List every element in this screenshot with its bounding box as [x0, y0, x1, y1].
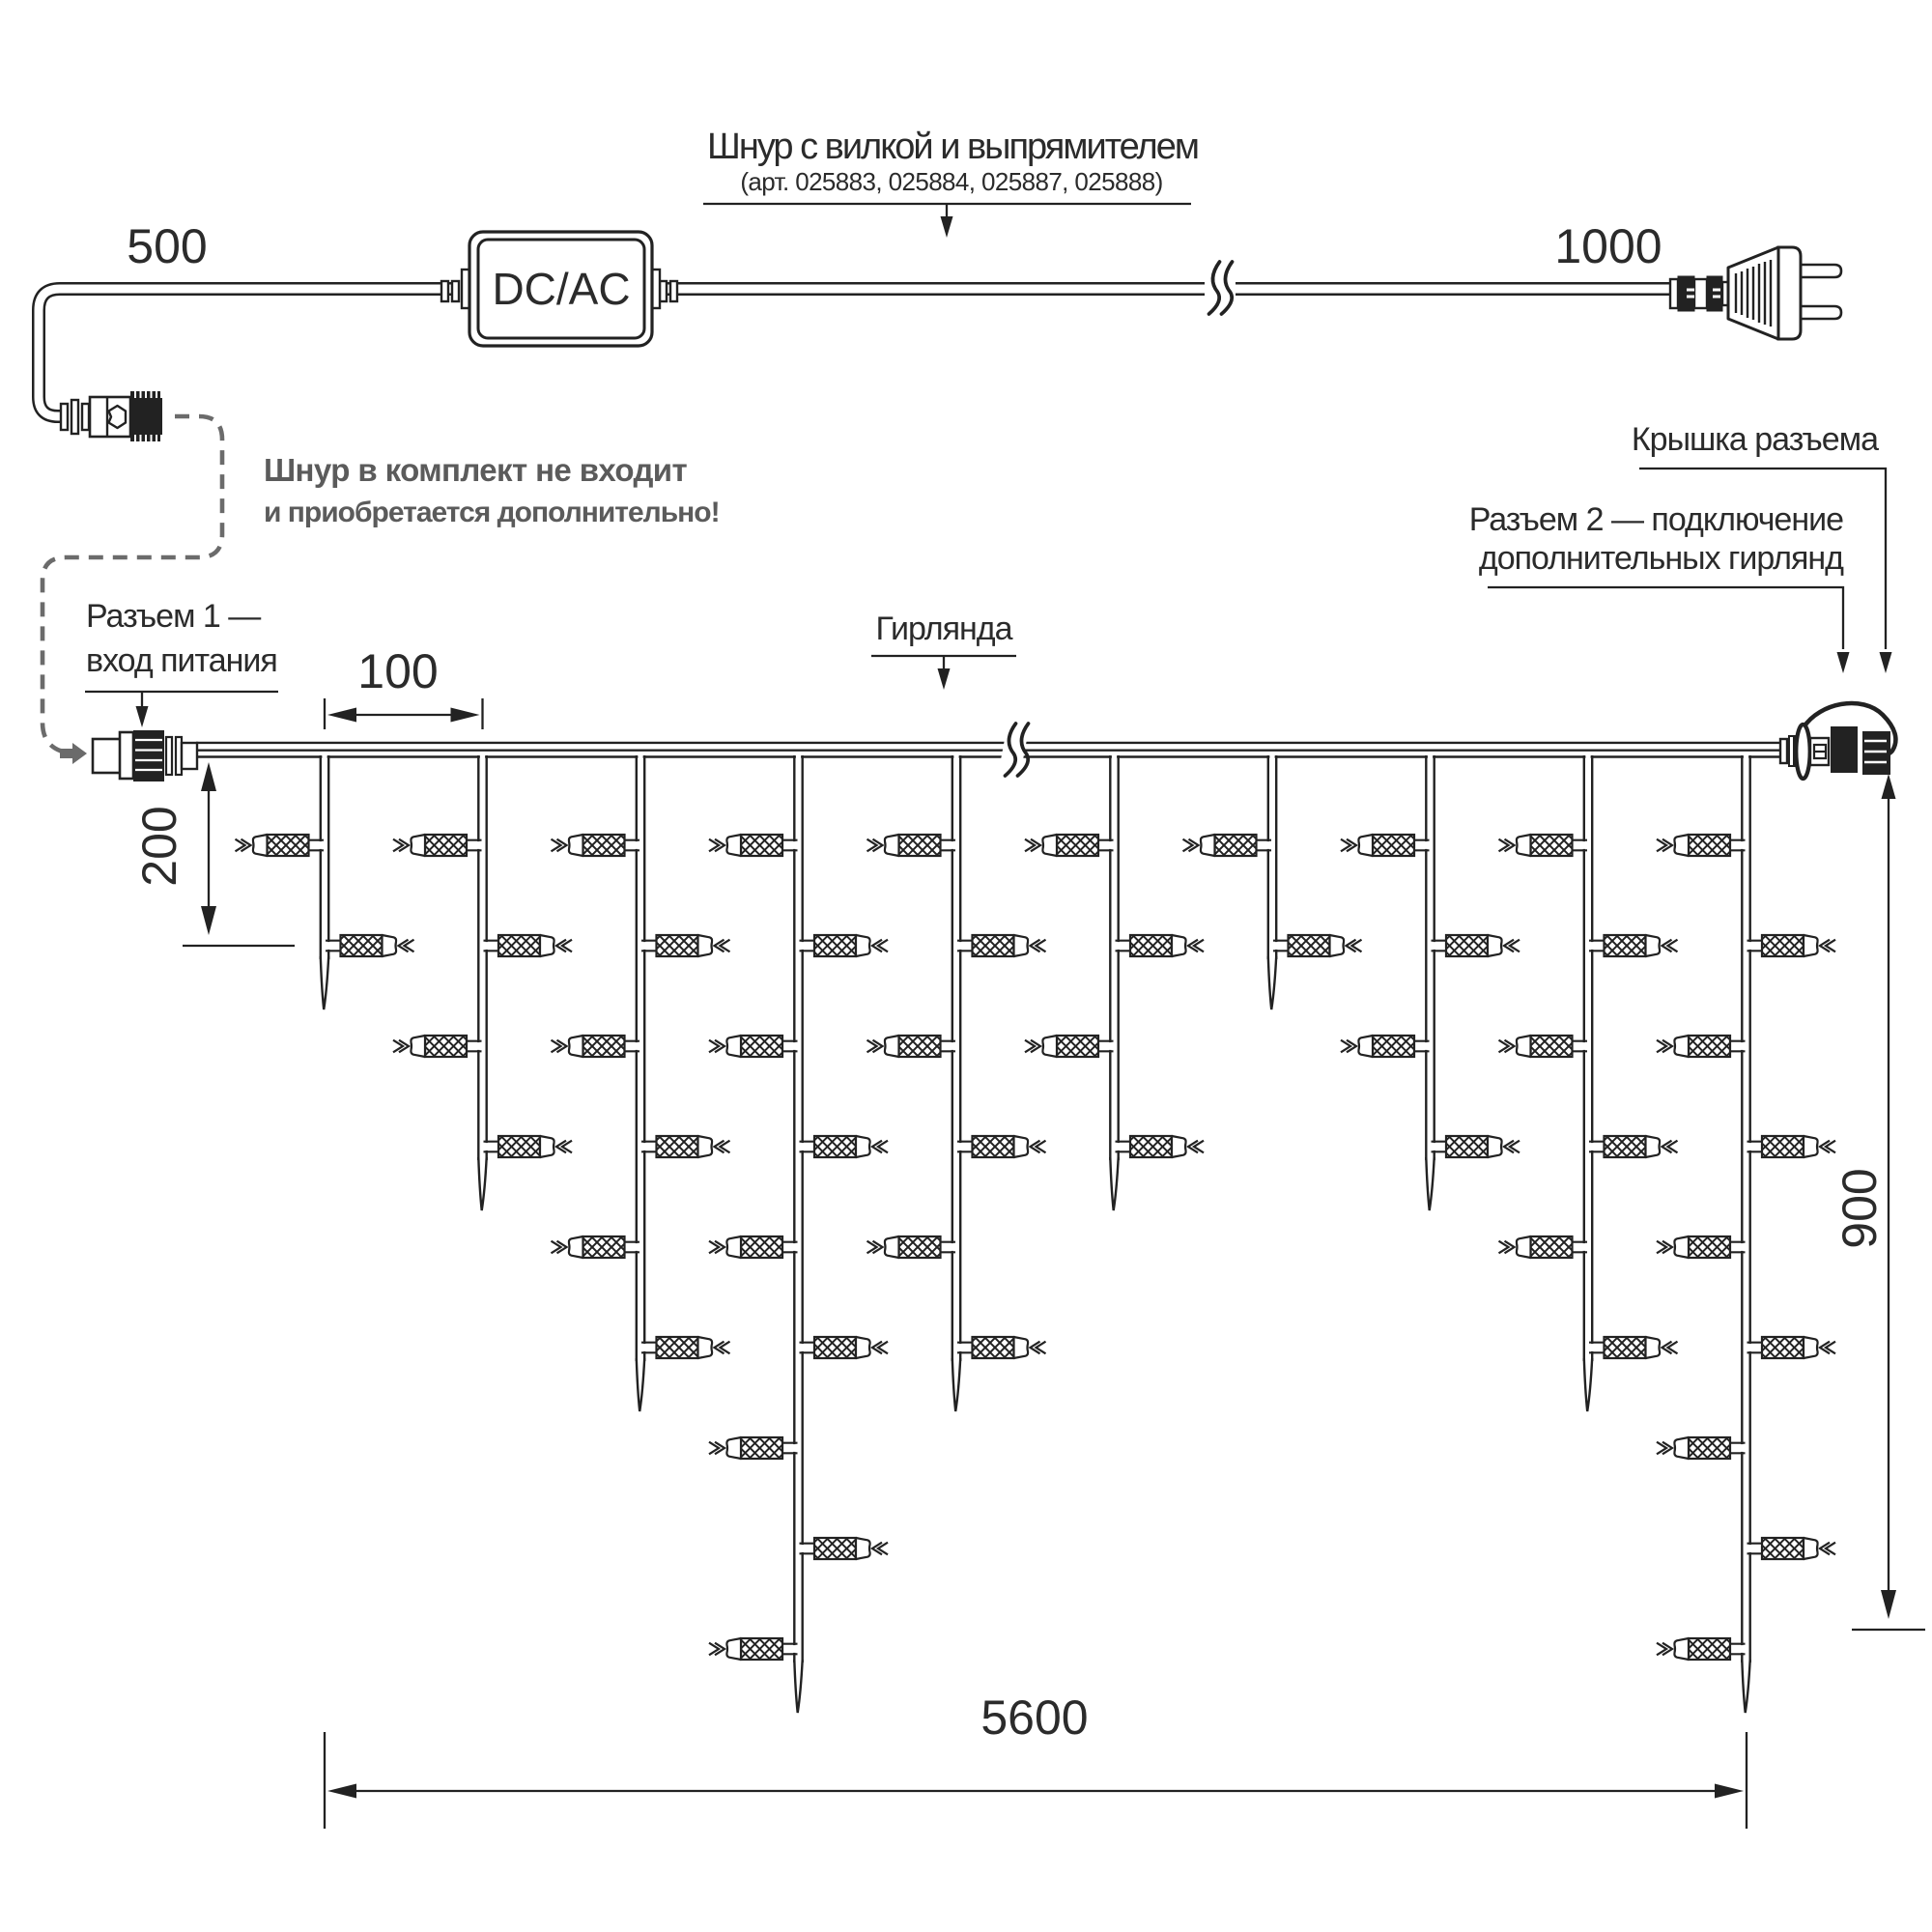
- svg-text:Гирлянда: Гирлянда: [875, 611, 1012, 647]
- svg-text:и приобретается дополнительно!: и приобретается дополнительно!: [264, 497, 720, 528]
- svg-text:1000: 1000: [1554, 219, 1662, 273]
- svg-text:900: 900: [1833, 1168, 1887, 1248]
- svg-text:DC/AC: DC/AC: [492, 264, 630, 314]
- svg-text:Разъем 2 — подключение: Разъем 2 — подключение: [1469, 501, 1843, 538]
- svg-text:200: 200: [132, 806, 186, 886]
- svg-text:100: 100: [357, 644, 438, 698]
- svg-text:500: 500: [127, 219, 207, 273]
- svg-text:Шнур в комплект не входит: Шнур в комплект не входит: [264, 452, 687, 488]
- svg-text:Шнур с вилкой и выпрямителем: Шнур с вилкой и выпрямителем: [707, 127, 1198, 167]
- svg-text:вход питания: вход питания: [86, 642, 277, 679]
- svg-text:дополнительных гирлянд: дополнительных гирлянд: [1479, 540, 1844, 577]
- svg-text:Крышка разъема: Крышка разъема: [1632, 421, 1879, 458]
- svg-text:Разъем 1 —: Разъем 1 —: [86, 598, 261, 635]
- svg-text:5600: 5600: [980, 1690, 1088, 1745]
- svg-text:(арт. 025883, 025884, 025887,: (арт. 025883, 025884, 025887, 025888): [740, 167, 1162, 196]
